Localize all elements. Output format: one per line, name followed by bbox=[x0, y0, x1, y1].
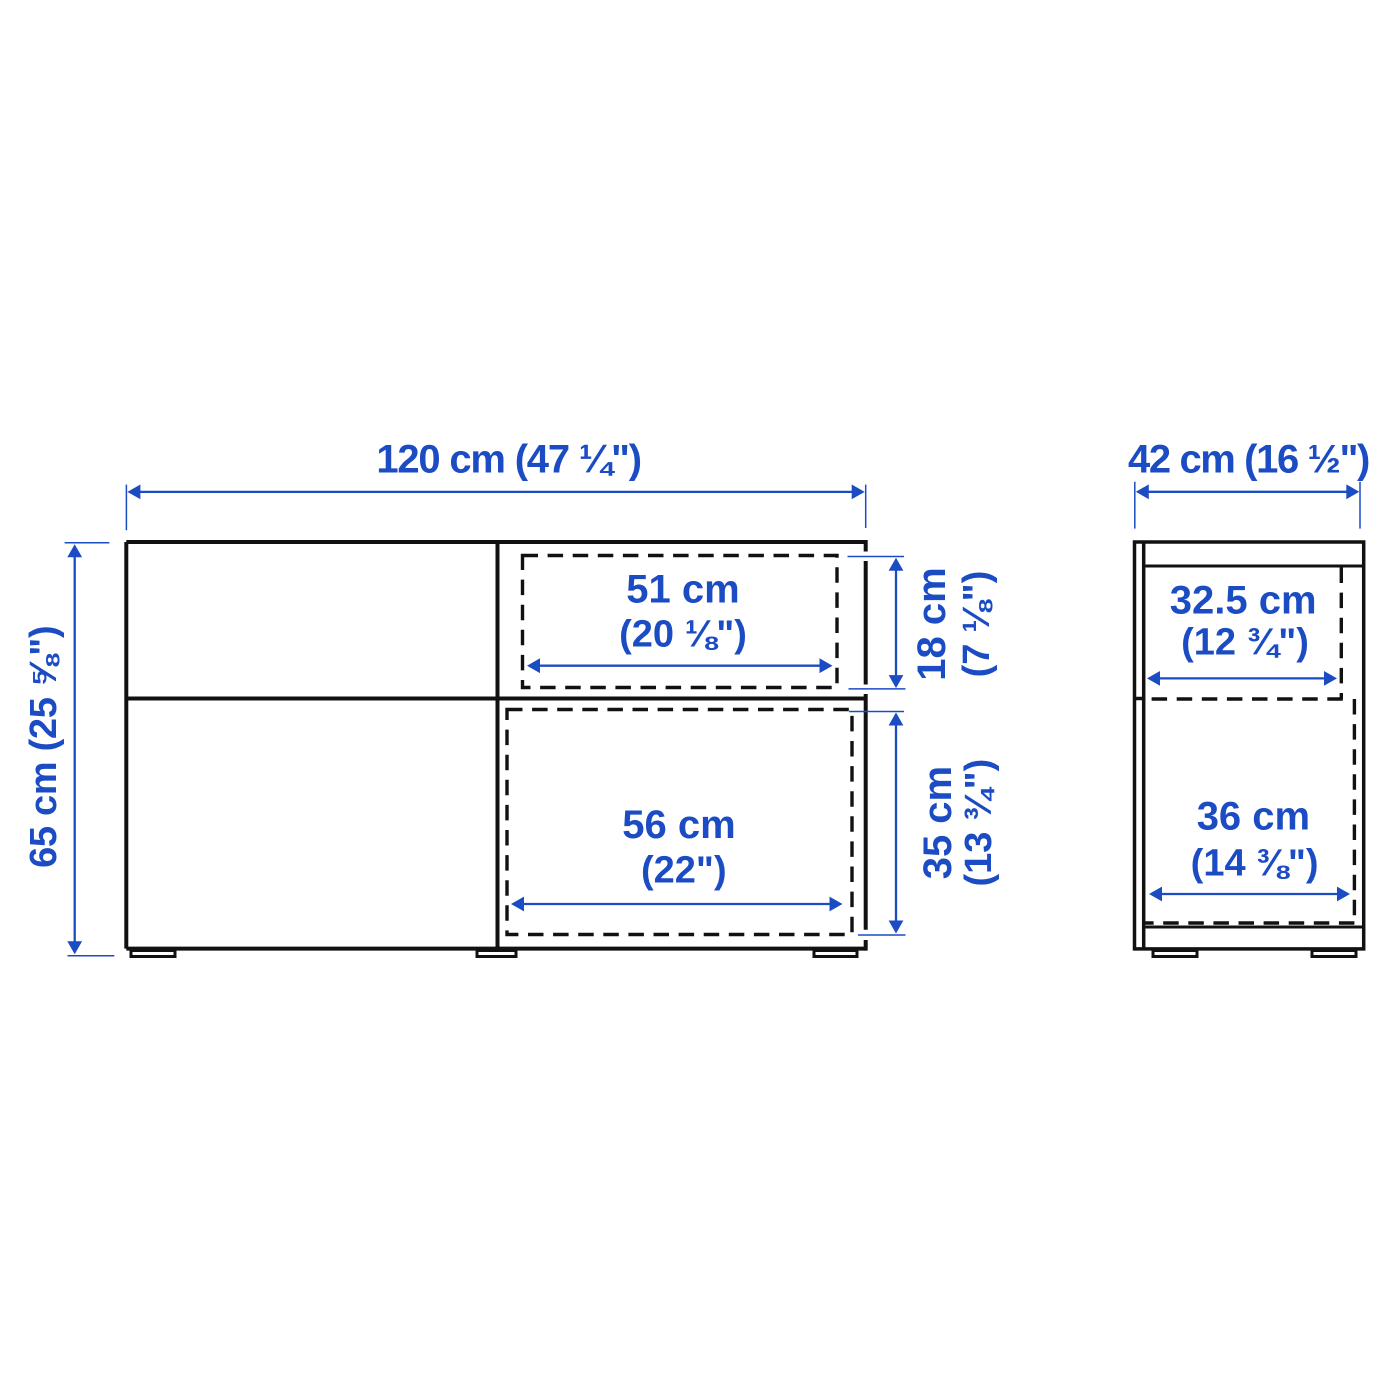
svg-text:(12 ¾"): (12 ¾") bbox=[1181, 622, 1309, 664]
svg-text:32.5 cm: 32.5 cm bbox=[1170, 578, 1317, 622]
svg-text:18 cm: 18 cm bbox=[910, 567, 954, 680]
svg-text:42 cm (16 ½"): 42 cm (16 ½") bbox=[1128, 438, 1369, 482]
svg-text:(13 ¾"): (13 ¾") bbox=[958, 759, 1000, 887]
svg-text:65 cm (25 ⅝"): 65 cm (25 ⅝") bbox=[23, 626, 65, 868]
svg-text:35 cm: 35 cm bbox=[916, 766, 960, 879]
svg-text:(14 ⅜"): (14 ⅜") bbox=[1191, 842, 1319, 884]
svg-text:(22"): (22") bbox=[641, 850, 727, 892]
svg-text:(20 ⅛"): (20 ⅛") bbox=[619, 613, 747, 655]
svg-text:51 cm: 51 cm bbox=[626, 568, 739, 612]
svg-text:56 cm: 56 cm bbox=[622, 803, 735, 847]
svg-text:36 cm: 36 cm bbox=[1197, 794, 1310, 838]
svg-text:120 cm (47 ¼"): 120 cm (47 ¼") bbox=[376, 438, 641, 482]
svg-text:(7 ⅛"): (7 ⅛") bbox=[956, 571, 998, 678]
